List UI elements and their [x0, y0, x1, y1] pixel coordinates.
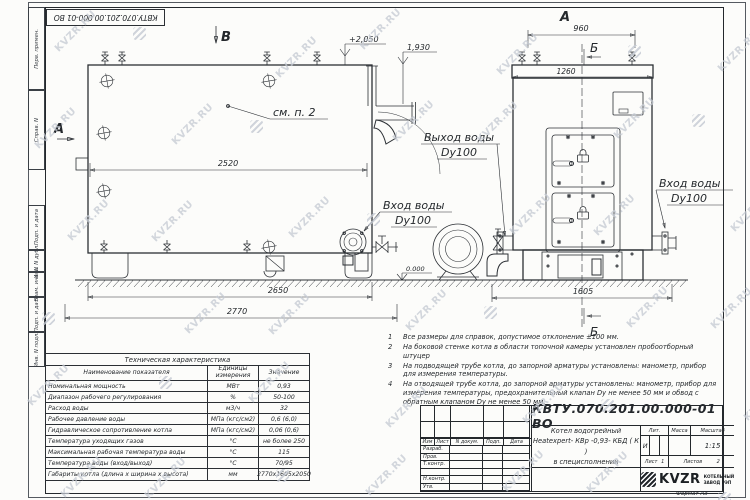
front-view-dimensions: 960 А Б 1260 1605 Б Выход воды Dy100 Вхо…: [421, 10, 733, 339]
note-text: На боковой стенке котла в области топочн…: [403, 343, 720, 361]
note-number: 4: [388, 380, 403, 407]
dim-1605: 1605: [573, 287, 593, 296]
company-name-line: ЗАВОД РЭП: [704, 480, 735, 485]
tech-row-value: 0,93: [259, 381, 309, 392]
elev-0000: 0.000: [406, 265, 425, 273]
gost-drawing-sheet: Перв. примен. Справ. N Подп. и дата Инв.…: [0, 0, 750, 500]
scale-value: 1:15: [691, 436, 734, 455]
valve-icon: [264, 52, 271, 65]
valve-icon: [314, 52, 321, 65]
tech-row-unit: МПа (кгс/см2): [208, 414, 259, 425]
tech-row-value: 2770х1605х2050: [259, 469, 309, 480]
valve-icon: [102, 52, 109, 65]
outlet-water-dn: Dy100: [441, 146, 477, 159]
kvzr-logo-text: KVZR: [659, 472, 701, 487]
tech-row-unit: мм: [208, 469, 259, 480]
note-item: 3 На подводящей трубе котла, до запорной…: [388, 362, 720, 380]
tech-row-name: Гидравлическое сопротивление котла: [46, 425, 208, 436]
drain-valve-icon: [101, 240, 108, 253]
tech-row-unit: м3/ч: [208, 403, 259, 414]
drain-valve-icon: [164, 240, 171, 253]
sheets-label: Листов: [683, 459, 702, 465]
elev-2050: +2,050: [349, 35, 379, 44]
dim-2520: 2520: [218, 159, 238, 168]
tech-col-header: Наименование показателя: [46, 366, 208, 381]
change-col: Изм: [421, 439, 435, 445]
inlet-water-right-label: Вход воды: [659, 177, 721, 190]
valve-icon: [534, 52, 541, 65]
tech-row-value: 32: [259, 403, 309, 414]
sheets-num: 2: [717, 459, 720, 465]
tech-row-unit: °С: [208, 447, 259, 458]
change-col: Подп.: [484, 439, 504, 445]
empty-cell: [532, 468, 641, 491]
dim-2770: 2770: [227, 307, 247, 316]
scale-header: Масштаб: [691, 426, 734, 435]
mark-icon: [262, 74, 277, 89]
boiler-side-view: [76, 52, 440, 278]
mark-icon: [97, 184, 112, 199]
tech-row-value: 0,6 (6,0): [259, 414, 309, 425]
view-letter-a: А: [53, 122, 64, 137]
tech-row-name: Номинальная мощность: [46, 381, 208, 392]
tech-row-name: Расход воды: [46, 403, 208, 414]
change-col: Лист: [435, 439, 451, 445]
role-label: Пров.: [421, 454, 450, 462]
change-table-header: Изм Лист N докум. Подп. Дата: [421, 439, 531, 446]
mass-value: [669, 436, 691, 455]
see-note-callout: см. п. 2: [273, 106, 316, 119]
view-letter-a-top: А: [559, 10, 570, 25]
change-table: [421, 406, 531, 439]
tech-row-unit: °С: [208, 458, 259, 469]
title-block: Изм Лист N докум. Подп. Дата Разраб. Про…: [420, 405, 723, 492]
note-text: Все размеры для справок, допустимое откл…: [403, 333, 720, 342]
tech-row-value: 115: [259, 447, 309, 458]
sheet-num: 1: [661, 459, 664, 465]
elev-1930: 1,930: [407, 43, 430, 52]
mark-icon: [97, 126, 112, 141]
dim-960: 960: [573, 24, 588, 33]
tech-row-value: 0,06 (0,6): [259, 425, 309, 436]
tech-row-name: Рабочее давление воды: [46, 414, 208, 425]
tech-characteristics-table: Техническая характеристика Наименование …: [45, 353, 310, 481]
tech-row-name: Диапазон рабочего регулирования: [46, 392, 208, 403]
tech-col-header: Единицы измерения: [208, 366, 259, 381]
valve-icon: [629, 52, 636, 65]
inlet-water-label: Вход воды: [383, 199, 445, 212]
role-label: Утв.: [421, 484, 450, 492]
note-item: 1 Все размеры для справок, допустимое от…: [388, 333, 720, 342]
role-label: [421, 469, 450, 477]
tech-row-value: не более 250: [259, 436, 309, 447]
change-col: Дата: [504, 439, 530, 445]
tech-row-unit: %: [208, 392, 259, 403]
dim-1260: 1260: [556, 67, 575, 76]
tech-row-unit: МПа (кгс/см2): [208, 425, 259, 436]
lit-value: И: [641, 436, 650, 455]
note-number: 3: [388, 362, 403, 380]
mass-header: Масса: [669, 426, 691, 435]
valve-icon: [119, 52, 126, 65]
ground-line: [75, 280, 688, 287]
inlet-water-dn: Dy100: [395, 214, 431, 227]
change-col: N докум.: [451, 439, 484, 445]
kvzr-logo-icon: [641, 472, 656, 487]
drawing-notes: 1 Все размеры для справок, допустимое от…: [388, 333, 720, 408]
note-number: 1: [388, 333, 403, 342]
mark-icon: [262, 240, 277, 255]
tech-col-header: Значение: [259, 366, 309, 381]
product-name-line: Котел водогрейный: [551, 426, 621, 436]
note-number: 2: [388, 343, 403, 361]
sheet-cell: Лист 1: [641, 456, 669, 467]
tech-row-unit: °С: [208, 436, 259, 447]
note-text: На подводящей трубе котла, до запорной а…: [403, 362, 720, 380]
outlet-water-label: Выход воды: [424, 131, 494, 144]
tech-row-unit: МВт: [208, 381, 259, 392]
tech-row-name: Температура воды (вход/выход): [46, 458, 208, 469]
doc-number: КВТУ.070.201.00.000-01 ВО: [532, 406, 734, 426]
sheet-label: Лист: [645, 459, 658, 465]
company-name-line: КОТЕЛЬНЫЙ: [704, 474, 735, 479]
tech-row-name: Габариты котла (длина х ширина х высота): [46, 469, 208, 480]
tech-row-name: Температура уходящих газов: [46, 436, 208, 447]
product-name: Котел водогрейный Heatexpert- КВр -0,93-…: [532, 426, 641, 467]
company-name: КОТЕЛЬНЫЙ ЗАВОД РЭП: [704, 474, 735, 485]
company-logo-block: KVZR КОТЕЛЬНЫЙ ЗАВОД РЭП: [641, 468, 734, 491]
view-letter-b-top: Б: [590, 41, 598, 55]
tech-row-value: 70/95: [259, 458, 309, 469]
product-name-line: Heatexpert- КВр -0,93- КБД ( К ): [532, 436, 640, 456]
signature-rows: Разраб. Пров. Т.контр. Н.контр. Утв.: [421, 446, 531, 491]
dim-2650: 2650: [268, 286, 288, 295]
format-label: Формат А3: [676, 491, 708, 497]
lit-header: Лит.: [641, 426, 669, 435]
tech-table-title: Техническая характеристика: [45, 353, 310, 366]
role-label: Н.контр.: [421, 476, 450, 484]
inlet-water-right-dn: Dy100: [671, 192, 707, 205]
note-item: 2 На боковой стенке котла в области топо…: [388, 343, 720, 361]
sheets-cell: Листов 2: [669, 456, 734, 467]
product-name-line: в специсполнении: [553, 457, 618, 467]
role-label: Разраб.: [421, 446, 450, 454]
tech-row-value: 50-100: [259, 392, 309, 403]
drain-valve-icon: [244, 240, 251, 253]
view-letter-v: В: [221, 30, 231, 45]
valve-icon: [519, 52, 526, 65]
role-label: Т.контр.: [421, 461, 450, 469]
tech-row-name: Максимальная рабочая температура воды: [46, 447, 208, 458]
door-bolts: [557, 135, 605, 244]
mark-icon: [100, 74, 115, 89]
